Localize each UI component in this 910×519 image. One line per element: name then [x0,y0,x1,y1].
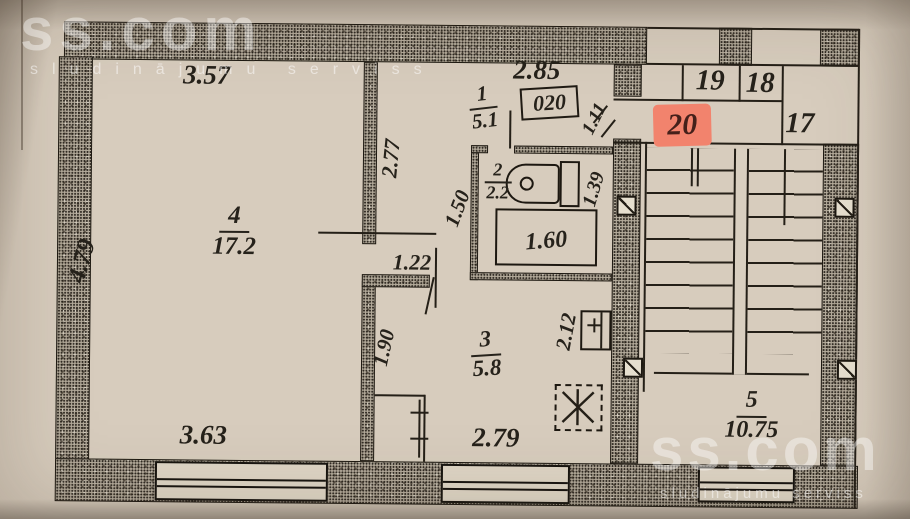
dim-kitchen-right: 2.12 [551,303,582,360]
landing-line-v3 [781,66,784,145]
dim-kitchen-bottom: 2.79 [448,424,543,452]
corridor-top-line [647,27,859,31]
kitchen-window [441,464,570,504]
toilet-tank [560,161,580,207]
room-label-bathroom: 2 2.2 [477,160,519,203]
wall-bath-bottom [470,272,612,281]
radiator-tick [410,438,428,440]
unit-number-19: 19 [696,66,725,95]
radiator-tick [411,412,429,414]
unit-number-17: 17 [785,109,814,138]
stairwell-window [698,466,795,503]
room-label-kitchen: 3 5.8 [453,325,520,382]
wall-bath-top-a [471,145,488,153]
window-pane-line [700,488,793,491]
landing-line-h2 [613,142,858,146]
dim-bath-right: 1.39 [576,161,611,218]
dim-living-bottom: 3.63 [158,421,248,449]
wall-corridor-bottom [362,274,430,288]
stair-flight-left [645,148,734,354]
room-label-living: 4 17.2 [192,201,277,260]
dim-corridor: 1.22 [382,251,442,274]
column-marker [616,196,636,216]
window-pane-line [700,481,793,484]
highlighted-unit-20: 20 [653,103,712,146]
living-window [155,461,328,502]
stair-railing [697,148,699,186]
dim-entry-width: 1.11 [575,92,614,145]
floor-plan: 3.57 2.85 3.63 2.79 4.79 2.77 1.11 1.50 … [0,0,910,519]
window-pane-line [157,486,326,490]
landing-line-v1 [682,65,684,101]
room-area: 5.1 [471,106,500,133]
stove-icon [580,310,611,350]
radiator-line [418,400,421,458]
stove-divider [600,312,602,348]
wall-top-segment [719,28,752,66]
stair-stringer [732,149,749,375]
room-number: 5 [736,388,766,418]
wall-hall-living [362,62,378,244]
dim-living-top: 3.57 [162,61,252,89]
stove-burner-cross [593,318,595,332]
bathroom-door-leaf [509,111,511,149]
living-door-leaf [318,232,436,235]
wall-apartment-right [610,139,641,464]
kitchen-notch-v [423,395,426,462]
wall-top-corner [820,28,859,66]
landing-line-v2 [739,66,741,102]
window-pane-line [443,481,568,484]
wall-entry-top [614,65,642,97]
sink-icon [554,384,602,431]
unit-number-18: 18 [746,69,775,98]
room-area: 2.2 [486,183,509,203]
dim-hall-depth: 2.77 [377,129,404,187]
apartment-number-box: 020 [520,85,580,120]
wall-bath-top-b [514,146,613,155]
window-pane-line [443,488,568,491]
column-marker [837,360,857,380]
kitchen-notch-h [375,394,425,396]
stair-railing [691,148,693,186]
room-label-stairwell: 5 10.75 [701,387,802,444]
floor-plan-photo: 3.57 2.85 3.63 2.79 4.79 2.77 1.11 1.50 … [0,0,910,519]
room-number: 4 [219,202,250,233]
toilet-bowl-circle [520,177,534,191]
window-pane-line [157,478,326,482]
room-number: 2 [484,160,511,184]
room-area: 17.2 [212,233,256,260]
room-number: 3 [470,326,501,357]
room-area: 5.8 [472,354,502,381]
column-marker [834,198,854,218]
room-label-hall: 1 5.1 [457,80,510,134]
apartment-number: 020 [532,89,567,117]
dim-hall-top: 2.85 [497,56,577,84]
column-marker [623,358,643,378]
landing-line-h1 [614,99,782,103]
highlighted-unit-number: 20 [667,108,698,143]
room-area: 10.75 [724,417,778,444]
wall-stair-right [820,144,859,466]
